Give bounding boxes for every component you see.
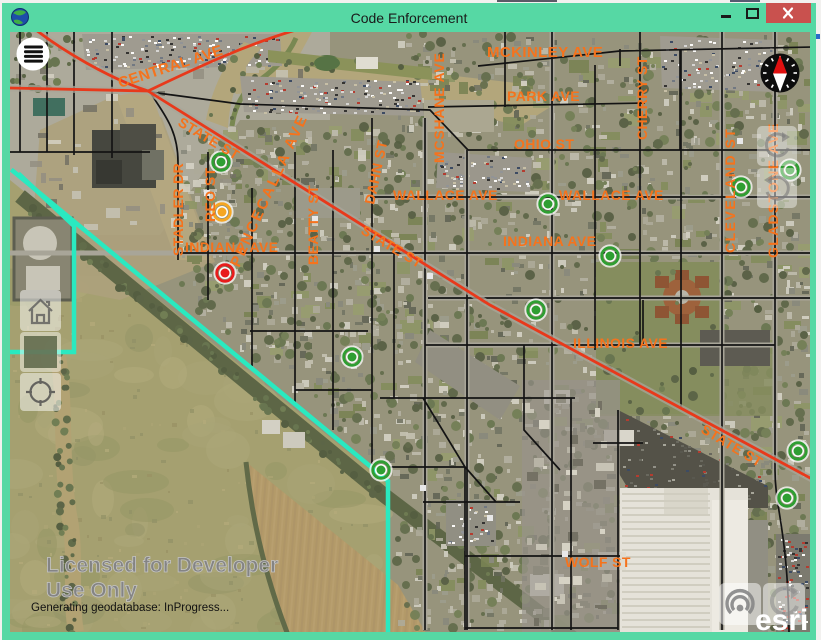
svg-text:CLEVELAND ST: CLEVELAND ST — [722, 128, 738, 253]
svg-text:OHIO ST: OHIO ST — [514, 136, 574, 152]
svg-text:INDIANA AVE: INDIANA AVE — [503, 233, 596, 249]
svg-text:WALLACE AVE: WALLACE AVE — [393, 187, 498, 203]
svg-text:ILLINOIS AVE: ILLINOIS AVE — [573, 335, 668, 351]
svg-text:CHERRY ST: CHERRY ST — [634, 56, 650, 140]
svg-text:STADLER DR: STADLER DR — [170, 163, 186, 256]
svg-text:Use Only: Use Only — [46, 579, 137, 602]
svg-text:esri: esri — [755, 604, 808, 637]
svg-text:REO ST: REO ST — [202, 167, 218, 222]
svg-text:BEATTY ST: BEATTY ST — [305, 185, 321, 265]
svg-text:WALLACE AVE: WALLACE AVE — [559, 187, 664, 203]
svg-text:MCSHANE AVE: MCSHANE AVE — [431, 52, 447, 163]
svg-text:WOLF ST: WOLF ST — [565, 554, 631, 570]
svg-text:Code Enforcement: Code Enforcement — [351, 10, 468, 26]
svg-text:Licensed for Developer: Licensed for Developer — [46, 554, 278, 577]
svg-text:Generating geodatabase: InProg: Generating geodatabase: InProgress... — [31, 602, 229, 614]
svg-text:PARK AVE: PARK AVE — [507, 88, 580, 104]
svg-text:MCKINLEY AVE: MCKINLEY AVE — [487, 44, 603, 61]
